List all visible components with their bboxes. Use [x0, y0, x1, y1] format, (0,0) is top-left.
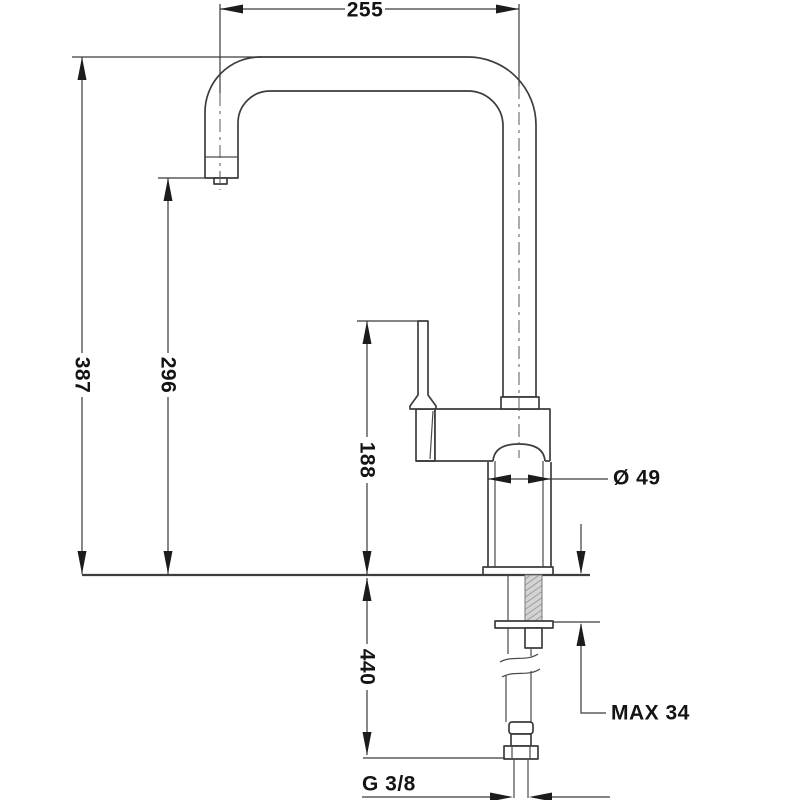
mixer-body-block: [435, 409, 550, 461]
mounting-washer: [495, 621, 553, 628]
dimension-supply-thread: G 3/8: [362, 773, 610, 800]
arrow-right: [496, 5, 519, 14]
break-line-1: [500, 654, 538, 662]
arrow-left: [220, 5, 243, 14]
dim-label-diameter: Ø 49: [613, 467, 661, 490]
arrow-down: [577, 551, 586, 574]
hose-swivel-nut: [504, 746, 538, 759]
arrow-right: [528, 475, 551, 484]
hose-ferrule-2: [511, 734, 531, 746]
arrow-down: [363, 551, 372, 574]
arrow-up: [577, 623, 586, 646]
arrow-up: [363, 321, 372, 344]
arrow-down: [363, 732, 372, 755]
hose-ferrule-1: [509, 722, 533, 734]
faucet-dimension-diagram: 255 387 296 188: [0, 0, 800, 800]
spout-collar: [501, 397, 539, 409]
dimension-max-deck-thickness: MAX 34: [553, 524, 690, 725]
dim-label-255: 255: [347, 0, 384, 22]
arrow-down: [78, 551, 87, 574]
dimension-lever-height: 188: [356, 321, 419, 574]
dim-label-188: 188: [356, 442, 379, 479]
threaded-stud: [525, 575, 542, 622]
mounting-nut: [525, 628, 542, 648]
dim-label-296: 296: [157, 357, 180, 394]
break-line-2: [502, 669, 540, 677]
dim-label-387: 387: [71, 357, 94, 394]
dim-line-lower: [581, 624, 606, 713]
base-flange: [483, 567, 553, 575]
dimension-outlet-height: 296: [157, 178, 206, 574]
lever-handle: [410, 321, 436, 409]
arrow-up: [78, 57, 87, 80]
dim-label-g38: G 3/8: [362, 773, 416, 796]
technical-drawing-page: 255 387 296 188: [0, 0, 800, 800]
dim-label-440: 440: [356, 649, 379, 686]
arrow-left: [529, 793, 552, 800]
dimension-hose-length: 440: [356, 578, 506, 758]
arrow-up: [363, 578, 372, 601]
dim-label-max34: MAX 34: [611, 702, 690, 725]
under-counter-assembly: [495, 575, 553, 798]
arrow-up: [164, 178, 173, 201]
dimension-body-diameter: Ø 49: [488, 467, 661, 490]
faucet-outline: [205, 57, 553, 575]
arrow-left: [488, 475, 511, 484]
spout-tube: [205, 57, 536, 397]
arrow-right: [490, 793, 513, 800]
arrow-down: [164, 551, 173, 574]
